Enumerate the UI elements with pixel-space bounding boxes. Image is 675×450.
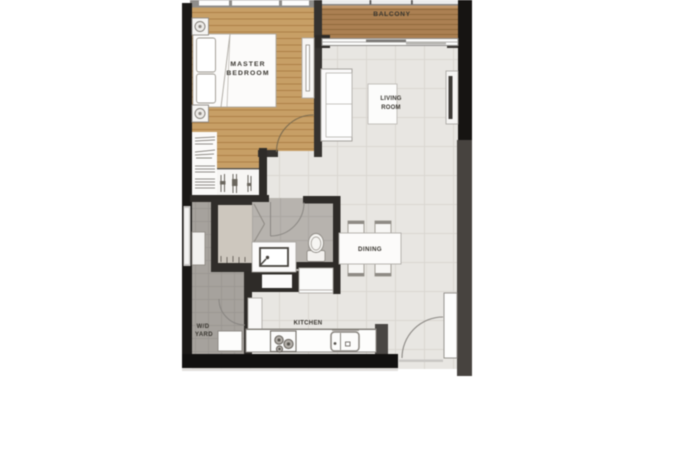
svg-text:ROOM: ROOM: [381, 105, 400, 111]
svg-text:W/D: W/D: [197, 324, 210, 330]
svg-text:MASTER: MASTER: [230, 61, 265, 68]
svg-text:LIVING: LIVING: [380, 96, 401, 102]
svg-text:YARD: YARD: [195, 332, 213, 338]
svg-text:BEDROOM: BEDROOM: [226, 70, 269, 77]
svg-text:DINING: DINING: [358, 246, 382, 253]
svg-text:KITCHEN: KITCHEN: [294, 321, 323, 327]
svg-text:BALCONY: BALCONY: [373, 11, 411, 18]
